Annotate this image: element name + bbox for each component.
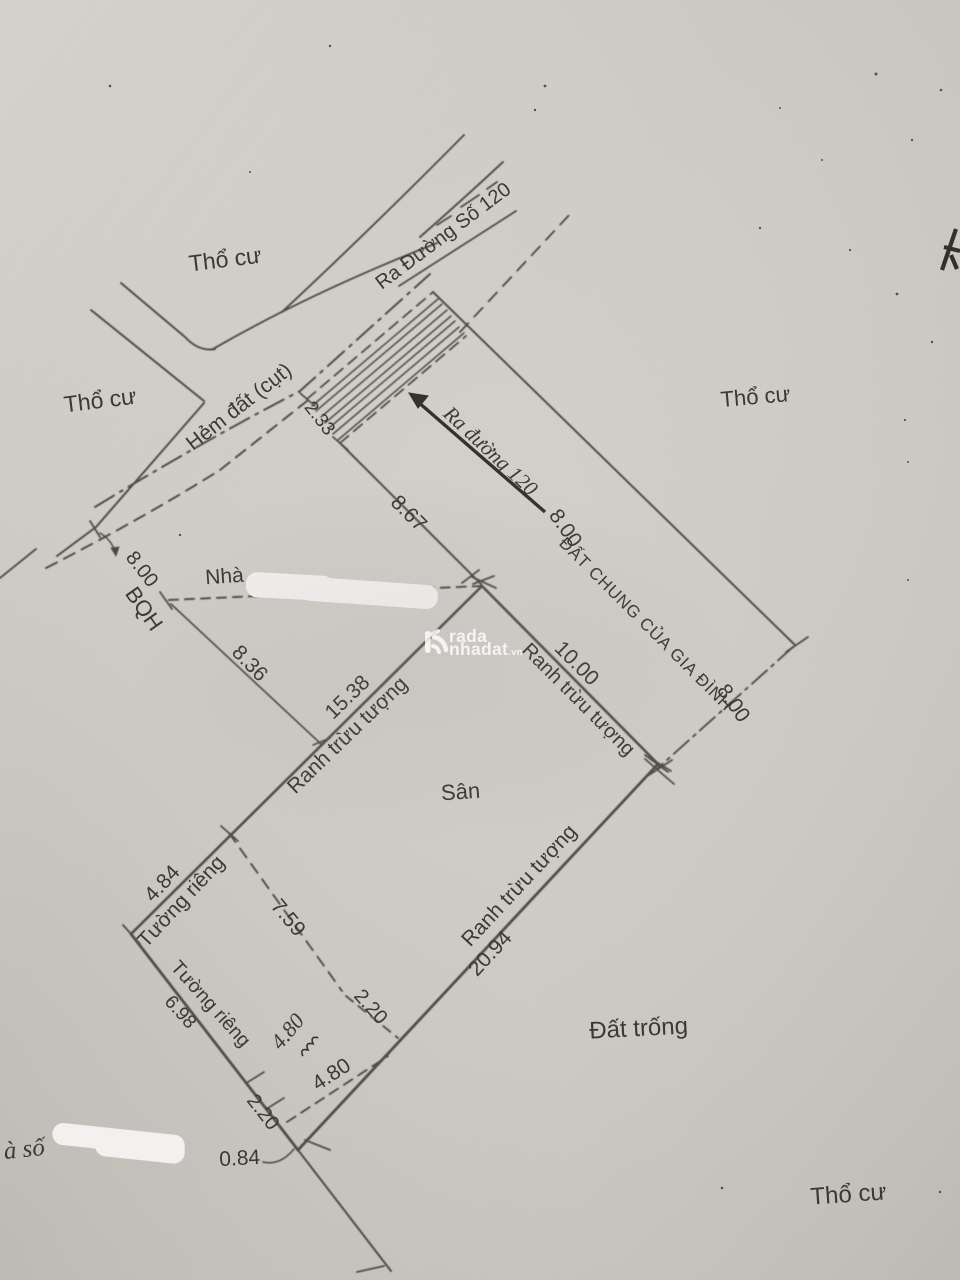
svg-text:Thổ cư: Thổ cư <box>810 1178 888 1210</box>
svg-text:à số: à số <box>2 1134 48 1165</box>
svg-text:Đất trống: Đất trống <box>589 1012 689 1044</box>
svg-text:0.84: 0.84 <box>219 1146 261 1171</box>
